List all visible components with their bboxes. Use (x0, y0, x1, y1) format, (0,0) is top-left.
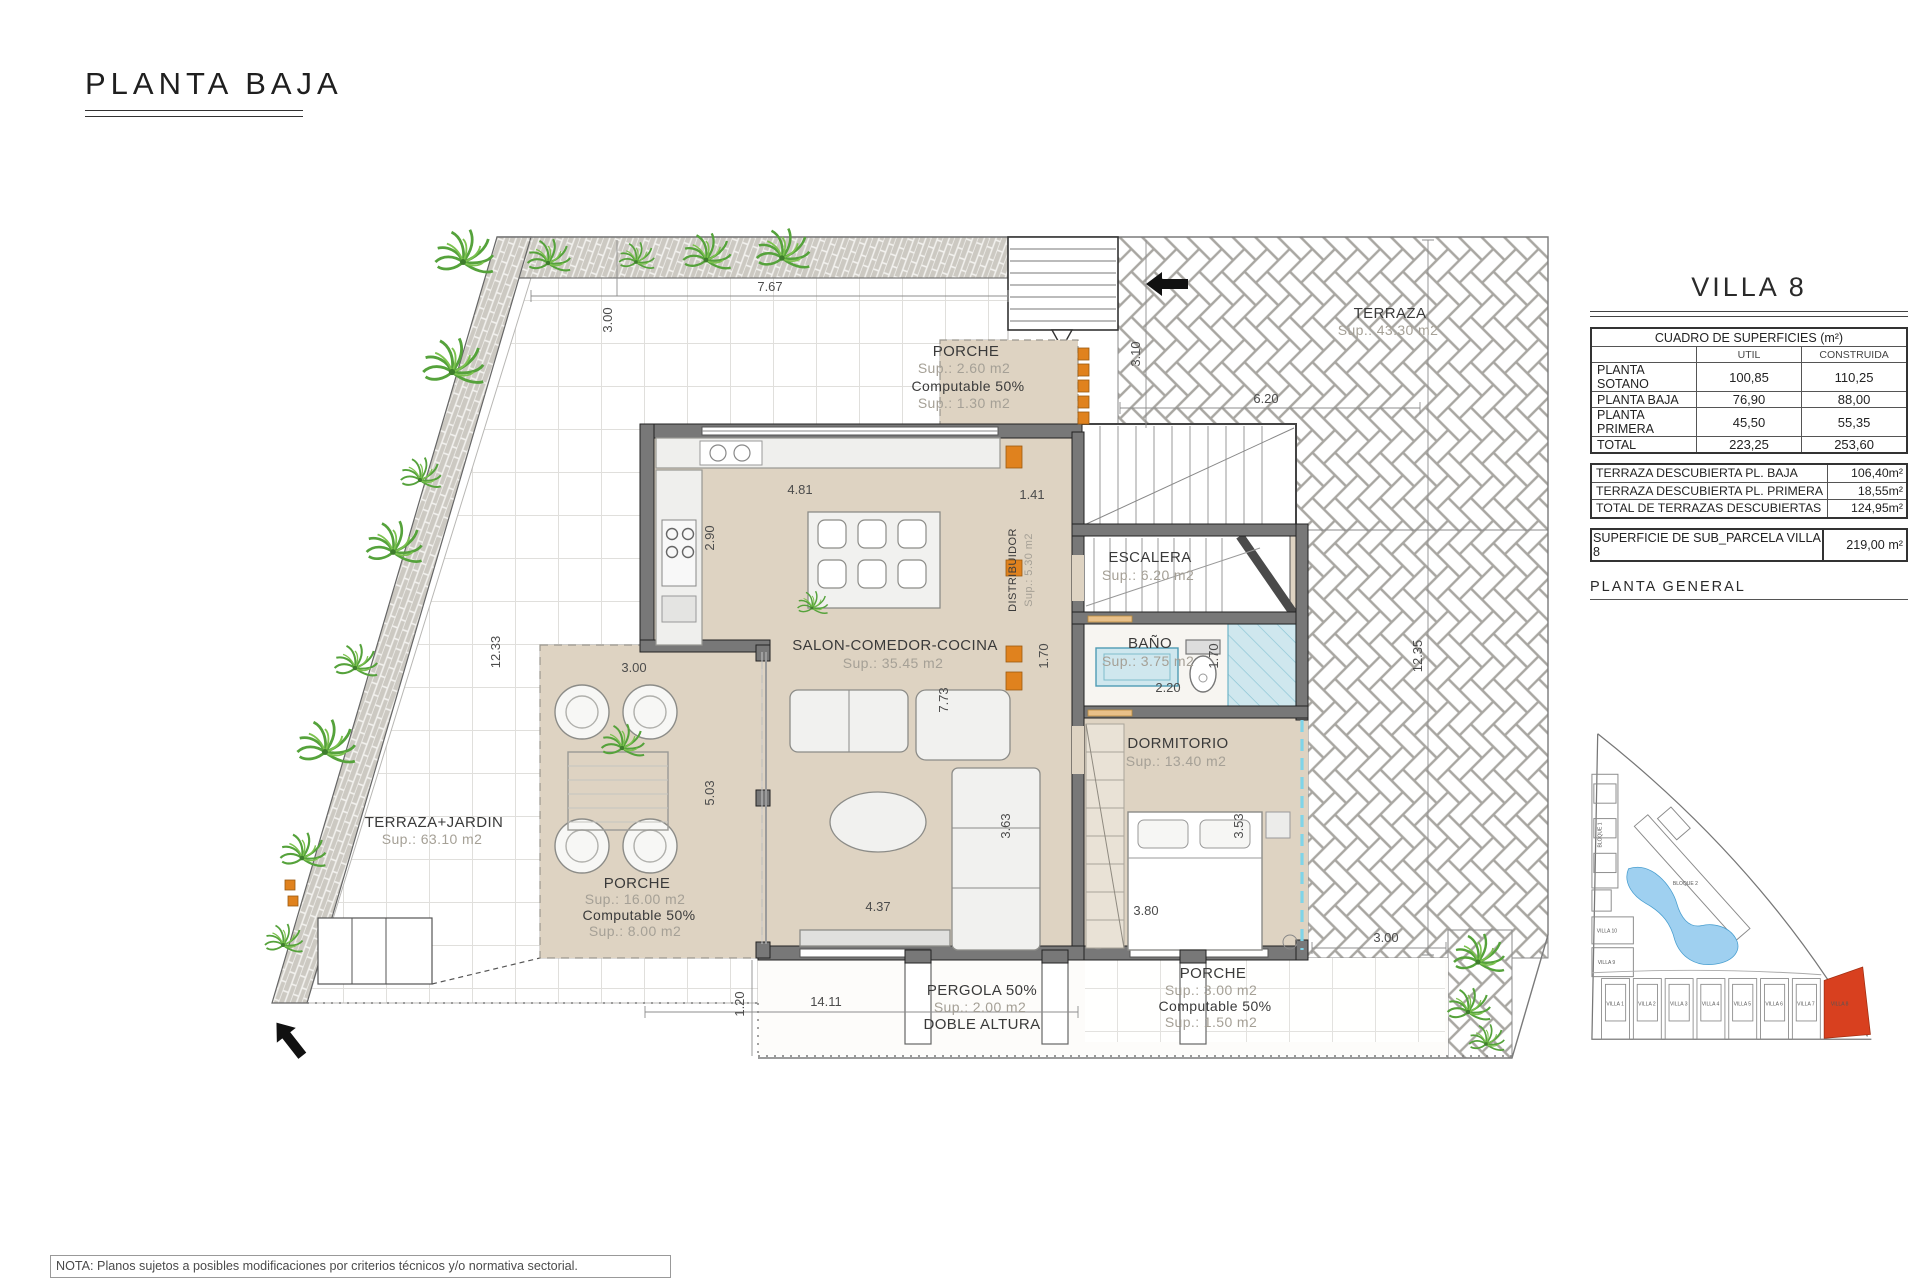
dimension-label: 7.73 (936, 687, 951, 712)
table-row: TERRAZA DESCUBIERTA PL. BAJA 106,40m² (1591, 464, 1907, 482)
dimension-label: 4.37 (865, 899, 890, 914)
room-note: DOBLE ALTURA (923, 1016, 1040, 1033)
room-note: Computable 50% (583, 907, 696, 923)
surfaces-table: CUADRO DE SUPERFICIES (m²) UTIL CONSTRUI… (1590, 327, 1908, 454)
room-area: Sup.: 2.60 m2 (918, 360, 1010, 376)
row-label: TOTAL (1591, 437, 1696, 454)
dimension-label: 6.20 (1253, 391, 1278, 406)
room-area: Sup.: 1.30 m2 (918, 395, 1010, 411)
dimension-label: 2.20 (1155, 680, 1180, 695)
site-label: VILLA 3 (1670, 1001, 1688, 1007)
table-row: TOTAL DE TERRAZAS DESCUBIERTAS 124,95m² (1591, 500, 1907, 518)
room-label: PERGOLA 50% (927, 982, 1037, 999)
row-label: TERRAZA DESCUBIERTA PL. BAJA (1591, 464, 1828, 482)
room-label: DORMITORIO (1127, 735, 1228, 752)
entry-arrow-bottom (267, 1015, 312, 1063)
dimension-label: 3.80 (1133, 903, 1158, 918)
dimension-label: 3.00 (600, 307, 615, 332)
row-construida: 55,35 (1802, 408, 1907, 437)
row-label: PLANTA BAJA (1591, 392, 1696, 408)
room-label: DISTRIBUIDOR (1007, 528, 1019, 612)
room-area: Sup.: 5.30 m2 (1023, 533, 1035, 607)
room-label: ESCALERA (1108, 549, 1191, 566)
dimension-label: 12.33 (488, 636, 503, 669)
dimension-label: 3.00 (621, 660, 646, 675)
col-header-construida: CONSTRUIDA (1802, 347, 1907, 363)
table-row: PLANTA BAJA 76,90 88,00 (1591, 392, 1907, 408)
site-label: VILLA 1 (1606, 1001, 1624, 1007)
room-area: Sup.: 1.50 m2 (1165, 1014, 1257, 1030)
room-area: Sup.: 16.00 m2 (585, 891, 686, 907)
dimension-label: 14.11 (810, 994, 842, 1009)
stairwell (1080, 424, 1296, 530)
row-util: 100,85 (1696, 363, 1801, 392)
site-label: BLOQUE 2 (1673, 881, 1698, 887)
room-label: SALON-COMEDOR-COCINA (792, 637, 998, 654)
table-row: PLANTA PRIMERA 45,50 55,35 (1591, 408, 1907, 437)
row-label: SUPERFICIE DE SUB_PARCELA VILLA 8 (1591, 529, 1823, 561)
site-label: VILLA 2 (1638, 1001, 1656, 1007)
row-construida: 253,60 (1802, 437, 1907, 454)
dimension-label: 3.00 (1373, 930, 1398, 945)
surfaces-table-title: CUADRO DE SUPERFICIES (m²) (1591, 328, 1907, 347)
row-value: 219,00 m² (1823, 529, 1907, 561)
room-area: Sup.: 35.45 m2 (843, 655, 944, 671)
dimension-label: 1.41 (1019, 487, 1044, 502)
room-area: Sup.: 13.40 m2 (1126, 753, 1227, 769)
room-label: PORCHE (604, 875, 671, 892)
room-area: Sup.: 43.30 m2 (1338, 322, 1439, 338)
site-label: VILLA 5 (1734, 1001, 1752, 1007)
row-label: TOTAL DE TERRAZAS DESCUBIERTAS (1591, 500, 1828, 518)
villa-title: VILLA 8 (1590, 272, 1908, 303)
room-area: Sup.: 6.20 m2 (1102, 567, 1194, 583)
exterior-stairs-top (1008, 237, 1118, 348)
villa-title-rule (1590, 311, 1908, 317)
table-row: TOTAL 223,25 253,60 (1591, 437, 1907, 454)
dimension-label: 5.03 (702, 780, 717, 805)
room-label: TERRAZA (1354, 305, 1427, 322)
site-label: VILLA 4 (1702, 1001, 1720, 1007)
row-label: PLANTA PRIMERA (1591, 408, 1696, 437)
terraces-table: TERRAZA DESCUBIERTA PL. BAJA 106,40m² TE… (1590, 463, 1908, 519)
dimension-label: 3.10 (1128, 341, 1143, 366)
note-bar: NOTA: Planos sujetos a posibles modifica… (50, 1255, 671, 1278)
room-area: Sup.: 2.00 m2 (934, 999, 1026, 1015)
table-row: PLANTA SOTANO 100,85 110,25 (1591, 363, 1907, 392)
dimension-label: 7.67 (757, 279, 782, 294)
dimension-label: 1.20 (732, 991, 747, 1016)
site-label: BLOQUE 1 (1598, 822, 1604, 847)
floor-plan-sheet: PLANTA BAJA (0, 0, 1920, 1280)
info-panel: VILLA 8 CUADRO DE SUPERFICIES (m²) UTIL … (1590, 272, 1908, 1060)
dimension-label: 12.35 (1410, 640, 1425, 673)
room-label: BAÑO (1128, 635, 1172, 652)
room-area: Sup.: 63.10 m2 (382, 831, 483, 847)
room-note: Computable 50% (912, 378, 1025, 394)
room-note: Computable 50% (1159, 998, 1272, 1014)
row-value: 18,55m² (1828, 482, 1908, 500)
dimension-label: 3.53 (1231, 813, 1246, 838)
dimension-label: 1.70 (1036, 643, 1051, 668)
row-util: 76,90 (1696, 392, 1801, 408)
room-area: Sup.: 3.00 m2 (1165, 982, 1257, 998)
row-util: 45,50 (1696, 408, 1801, 437)
site-plan-map: BLOQUE 1 BLOQUE 2 VILLA 10 VILLA 9 VILLA… (1590, 715, 1908, 1060)
room-area: Sup.: 3.75 m2 (1102, 653, 1194, 669)
site-label: VILLA 7 (1797, 1001, 1815, 1007)
dimension-label: 2.90 (702, 525, 717, 550)
col-header-util: UTIL (1696, 347, 1801, 363)
row-construida: 110,25 (1802, 363, 1907, 392)
room-area: Sup.: 8.00 m2 (589, 923, 681, 939)
row-label: TERRAZA DESCUBIERTA PL. PRIMERA (1591, 482, 1828, 500)
site-label-villa8: VILLA 8 (1831, 1001, 1849, 1007)
dimension-label: 4.81 (787, 482, 812, 497)
row-value: 124,95m² (1828, 500, 1908, 518)
row-util: 223,25 (1696, 437, 1801, 454)
room-label: PORCHE (933, 343, 1000, 360)
row-label: PLANTA SOTANO (1591, 363, 1696, 392)
site-plan-title: PLANTA GENERAL (1590, 579, 1908, 600)
room-label: TERRAZA+JARDIN (365, 814, 504, 831)
room-label: PORCHE (1180, 965, 1247, 982)
site-label: VILLA 10 (1597, 928, 1618, 934)
dimension-label: 1.70 (1206, 643, 1221, 668)
parcel-table: SUPERFICIE DE SUB_PARCELA VILLA 8 219,00… (1590, 528, 1908, 562)
dining-table (808, 512, 940, 608)
table-row: SUPERFICIE DE SUB_PARCELA VILLA 8 219,00… (1591, 529, 1907, 561)
table-row: TERRAZA DESCUBIERTA PL. PRIMERA 18,55m² (1591, 482, 1907, 500)
row-value: 106,40m² (1828, 464, 1908, 482)
dimension-label: 3.63 (998, 813, 1013, 838)
row-construida: 88,00 (1802, 392, 1907, 408)
site-label: VILLA 6 (1765, 1001, 1783, 1007)
site-label: VILLA 9 (1598, 960, 1616, 966)
